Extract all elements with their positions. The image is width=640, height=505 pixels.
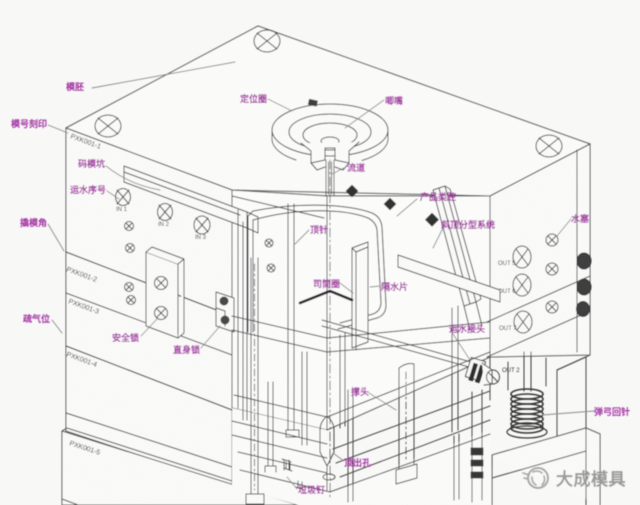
svg-text:安全锁: 安全锁 <box>112 332 139 343</box>
svg-text:流道: 流道 <box>347 162 365 173</box>
svg-text:定位圈: 定位圈 <box>239 93 267 104</box>
svg-text:模号刻印: 模号刻印 <box>11 118 47 129</box>
svg-text:大成模具: 大成模具 <box>556 469 626 489</box>
svg-text:OUT 2: OUT 2 <box>502 368 520 374</box>
svg-text:垃圾钉: 垃圾钉 <box>298 484 325 495</box>
svg-text:IN 3: IN 3 <box>195 235 207 241</box>
svg-text:模胚: 模胚 <box>66 81 84 92</box>
svg-text:隔水片: 隔水片 <box>381 281 408 292</box>
svg-text:顶出孔: 顶出孔 <box>344 457 371 468</box>
svg-text:直身锁: 直身锁 <box>173 344 200 355</box>
svg-text:OUT 7: OUT 7 <box>499 326 517 332</box>
svg-text:IN 1: IN 1 <box>116 207 128 213</box>
svg-text:司筒圈: 司筒圈 <box>313 278 340 289</box>
svg-text:水塞: 水塞 <box>571 213 590 224</box>
svg-text:唧嘴: 唧嘴 <box>385 95 403 106</box>
svg-text:撑头: 撑头 <box>351 386 369 397</box>
svg-text:撬模角: 撬模角 <box>20 217 47 228</box>
svg-text:OUT 5: OUT 5 <box>498 261 516 267</box>
svg-text:疏气位: 疏气位 <box>23 313 50 324</box>
svg-text:码模坑: 码模坑 <box>78 158 105 169</box>
svg-text:弹弓回针: 弹弓回针 <box>594 406 630 417</box>
svg-text:OUT 6: OUT 6 <box>498 289 516 295</box>
svg-text:IN 2: IN 2 <box>158 222 170 228</box>
svg-text:运水序号: 运水序号 <box>70 184 106 195</box>
svg-text:产品类腔: 产品类腔 <box>420 191 456 202</box>
svg-text:顶针: 顶针 <box>310 224 328 235</box>
svg-text:运水接头: 运水接头 <box>449 323 485 334</box>
svg-text:斜顶分型系统: 斜顶分型系统 <box>440 219 495 230</box>
